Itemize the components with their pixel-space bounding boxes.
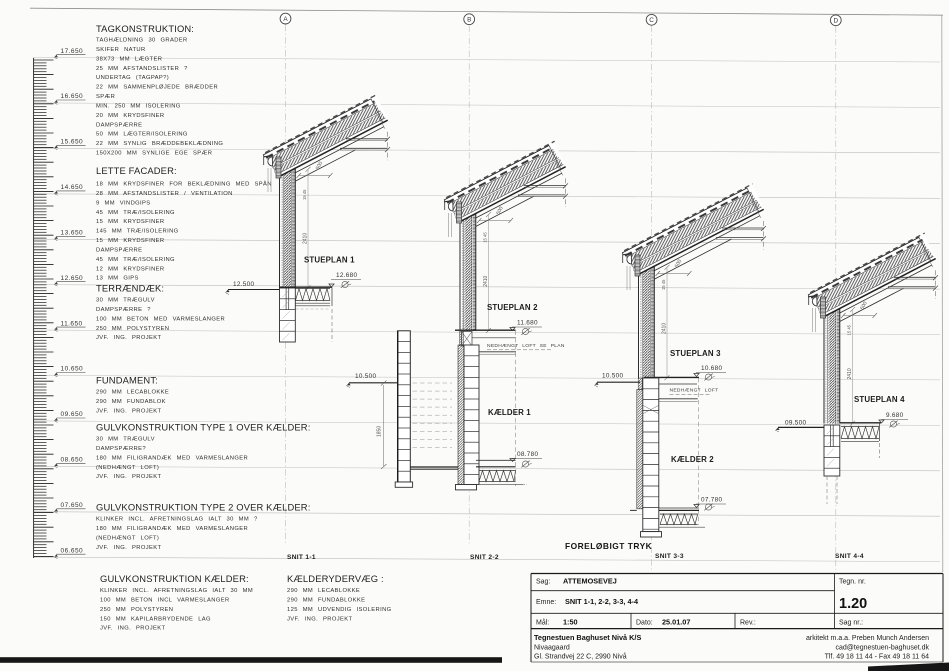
svg-text:15 45: 15 45 <box>483 232 488 243</box>
svg-text:06.650: 06.650 <box>61 547 84 554</box>
svg-text:290 MM FUNDABLOK: 290 MM FUNDABLOK <box>96 399 166 405</box>
svg-text:TERRÆNDÆK:: TERRÆNDÆK: <box>96 283 164 294</box>
svg-text:SNIT 2-2: SNIT 2-2 <box>470 554 499 561</box>
svg-text:Nivaagaard: Nivaagaard <box>534 645 570 652</box>
svg-text:12.650: 12.650 <box>61 275 84 282</box>
svg-text:9.680: 9.680 <box>886 412 904 419</box>
svg-text:10.500: 10.500 <box>602 373 623 380</box>
svg-text:STUEPLAN 1: STUEPLAN 1 <box>304 256 355 265</box>
svg-text:13 MM GIPS: 13 MM GIPS <box>96 276 139 282</box>
svg-text:Tegn. nr.: Tegn. nr. <box>839 579 866 586</box>
svg-text:12.500: 12.500 <box>233 281 254 288</box>
svg-text:D: D <box>833 18 838 25</box>
svg-text:STUEPLAN 4: STUEPLAN 4 <box>854 395 905 404</box>
svg-text:Emne:: Emne: <box>536 599 556 606</box>
svg-text:25.01.07: 25.01.07 <box>662 618 690 627</box>
svg-text:30 MM TRÆGULV: 30 MM TRÆGULV <box>96 298 155 304</box>
svg-text:11.680: 11.680 <box>517 320 538 327</box>
svg-text:150 MM KAPILARBRYDENDE LAG: 150 MM KAPILARBRYDENDE LAG <box>100 616 211 622</box>
svg-text:50 MM LÆGTER/ISOLERING: 50 MM LÆGTER/ISOLERING <box>96 132 188 138</box>
svg-text:Dato:: Dato: <box>636 620 653 627</box>
svg-text:28 MM AFSTANDSLISTER / VENTILA: 28 MM AFSTANDSLISTER / VENTILATION <box>96 191 233 197</box>
svg-text:1.20: 1.20 <box>839 596 867 612</box>
svg-text:15 MM KRYDSFINER: 15 MM KRYDSFINER <box>96 219 164 225</box>
svg-text:LETTE FACADER:: LETTE FACADER: <box>96 165 177 176</box>
svg-text:(NEDHÆNGT LOFT): (NEDHÆNGT LOFT) <box>96 535 159 541</box>
svg-text:45 MM TRÆ/ISOLERING: 45 MM TRÆ/ISOLERING <box>96 210 175 216</box>
svg-text:15 MM KRYDSFINER: 15 MM KRYDSFINER <box>96 238 164 244</box>
svg-text:22 MM SYNLIG BRÆDDEBEKLÆDNING: 22 MM SYNLIG BRÆDDEBEKLÆDNING <box>96 141 223 147</box>
svg-text:cad@tegnestuen-baghuset.dk: cad@tegnestuen-baghuset.dk <box>835 645 929 652</box>
svg-text:ATTEMOSEVEJ: ATTEMOSEVEJ <box>563 577 617 586</box>
svg-text:Tlf. 49 18 11 44 - Fax 49 18 1: Tlf. 49 18 11 44 - Fax 49 18 11 64 <box>825 654 930 661</box>
svg-text:12 MM KRYDSFINER: 12 MM KRYDSFINER <box>96 266 164 272</box>
svg-text:1850: 1850 <box>377 426 383 437</box>
svg-text:2410: 2410 <box>847 368 853 379</box>
svg-text:SKIFER NATUR: SKIFER NATUR <box>96 47 146 53</box>
svg-text:NEDHÆNGT LOFT SE PLAN: NEDHÆNGT LOFT SE PLAN <box>487 343 565 349</box>
svg-text:SNIT 3-3: SNIT 3-3 <box>655 553 684 560</box>
svg-text:Mål:: Mål: <box>536 619 549 627</box>
svg-text:2410: 2410 <box>662 323 668 334</box>
svg-text:KÆLDER 1: KÆLDER 1 <box>488 408 531 417</box>
svg-text:10.680: 10.680 <box>701 365 722 372</box>
svg-text:2410: 2410 <box>483 275 489 286</box>
svg-text:C: C <box>649 17 654 24</box>
svg-text:GULVKONSTRUKTION KÆLDER:: GULVKONSTRUKTION KÆLDER: <box>100 573 249 584</box>
svg-text:(NEDHÆNGT LOFT): (NEDHÆNGT LOFT) <box>96 465 159 471</box>
svg-text:JVF. ING. PROJEKT: JVF. ING. PROJEKT <box>96 474 161 480</box>
svg-text:15 45: 15 45 <box>847 324 852 335</box>
svg-text:08.780: 08.780 <box>517 451 538 458</box>
svg-text:10.650: 10.650 <box>61 366 84 373</box>
svg-text:GULVKONSTRUKTION TYPE 2 OVER K: GULVKONSTRUKTION TYPE 2 OVER KÆLDER: <box>96 502 310 513</box>
svg-text:JVF. ING. PROJEKT: JVF. ING. PROJEKT <box>100 626 165 632</box>
svg-text:DAMPSPÆRRE: DAMPSPÆRRE <box>96 122 142 128</box>
svg-text:KLINKER INCL. AFRETNINGSLAG IA: KLINKER INCL. AFRETNINGSLAG IALT 30 MM <box>100 588 253 594</box>
svg-text:125 MM UDVENDIG ISOLERING: 125 MM UDVENDIG ISOLERING <box>287 607 392 613</box>
svg-text:SNIT 1-1, 2-2, 3-3, 4-4: SNIT 1-1, 2-2, 3-3, 4-4 <box>565 597 639 606</box>
svg-text:290 MM LECABLOKKE: 290 MM LECABLOKKE <box>96 390 169 396</box>
svg-text:STUEPLAN 2: STUEPLAN 2 <box>487 303 538 312</box>
svg-text:MIN. 250 MM ISOLERING: MIN. 250 MM ISOLERING <box>96 103 181 109</box>
svg-text:09.500: 09.500 <box>785 420 806 427</box>
svg-text:11.650: 11.650 <box>61 320 83 327</box>
svg-text:100 MM BETON INCL VARMESLANGER: 100 MM BETON INCL VARMESLANGER <box>100 597 230 603</box>
svg-text:A: A <box>283 16 288 23</box>
svg-text:UNDERTAG (TAGPAP?): UNDERTAG (TAGPAP?) <box>96 75 169 81</box>
svg-text:180 MM FILIGRANDÆK MED VARMESL: 180 MM FILIGRANDÆK MED VARMESLANGER <box>96 455 248 461</box>
svg-text:TAGHÆLDNING 30 GRADER: TAGHÆLDNING 30 GRADER <box>96 38 188 44</box>
svg-text:NEDHÆNGT LOFT: NEDHÆNGT LOFT <box>670 388 719 394</box>
svg-text:KÆLDER 2: KÆLDER 2 <box>671 455 714 464</box>
svg-text:2410: 2410 <box>303 233 309 244</box>
svg-text:18 MM KRYDSFINER FOR BEKLÆDNIN: 18 MM KRYDSFINER FOR BEKLÆDNING MED SPÅN <box>96 181 272 188</box>
svg-text:30 MM TRÆGULV: 30 MM TRÆGULV <box>96 437 155 443</box>
svg-text:145 MM TRÆ/ISOLERING: 145 MM TRÆ/ISOLERING <box>96 229 179 235</box>
svg-text:STUEPLAN 3: STUEPLAN 3 <box>670 349 721 358</box>
svg-text:SPÆR: SPÆR <box>96 94 115 100</box>
svg-text:16.650: 16.650 <box>61 93 84 100</box>
svg-text:17.650: 17.650 <box>61 48 84 55</box>
svg-text:TAGKONSTRUKTION:: TAGKONSTRUKTION: <box>96 23 194 34</box>
svg-text:14.650: 14.650 <box>61 184 84 191</box>
svg-text:JVF. ING. PROJEKT: JVF. ING. PROJEKT <box>96 408 161 414</box>
svg-text:DAMPSPÆRRE ?: DAMPSPÆRRE ? <box>96 307 151 313</box>
svg-text:FORELØBIGT TRYK: FORELØBIGT TRYK <box>565 541 652 551</box>
svg-text:09.650: 09.650 <box>61 411 84 418</box>
svg-text:FUNDAMENT:: FUNDAMENT: <box>96 375 158 386</box>
svg-text:250 MM POLYSTYREN: 250 MM POLYSTYREN <box>100 607 173 613</box>
svg-text:B: B <box>467 17 471 24</box>
svg-text:25 MM AFSTANDSLISTER ?: 25 MM AFSTANDSLISTER ? <box>96 66 188 72</box>
svg-text:GULVKONSTRUKTION TYPE 1 OVER K: GULVKONSTRUKTION TYPE 1 OVER KÆLDER: <box>96 422 310 433</box>
svg-text:JVF. ING. PROJEKT: JVF. ING. PROJEKT <box>96 545 161 551</box>
svg-text:13.650: 13.650 <box>61 229 84 236</box>
svg-text:DAMPSPÆRRE?: DAMPSPÆRRE? <box>96 446 146 452</box>
svg-text:15 45: 15 45 <box>661 279 666 290</box>
svg-text:Sag nr.:: Sag nr.: <box>839 620 863 627</box>
svg-text:JVF. ING. PROJEKT: JVF. ING. PROJEKT <box>96 335 161 341</box>
svg-text:180 MM FILIGRANDÆK MED VARMESL: 180 MM FILIGRANDÆK MED VARMESLANGER <box>96 526 248 532</box>
svg-text:150X200 MM SYNLIGE EGE SPÆR: 150X200 MM SYNLIGE EGE SPÆR <box>96 151 212 157</box>
svg-text:250 MM POLYSTYREN: 250 MM POLYSTYREN <box>96 326 169 332</box>
svg-text:45 MM TRÆ/ISOLERING: 45 MM TRÆ/ISOLERING <box>96 257 175 263</box>
svg-text:290 MM LECABLOKKE: 290 MM LECABLOKKE <box>287 588 360 594</box>
svg-text:07.780: 07.780 <box>701 497 722 504</box>
svg-text:arkitekt m.a.a. Preben Munch A: arkitekt m.a.a. Preben Munch Andersen <box>806 635 929 642</box>
svg-text:SNIT 1-1: SNIT 1-1 <box>287 554 316 561</box>
svg-text:DAMPSPÆRRE: DAMPSPÆRRE <box>96 247 142 253</box>
svg-text:SNIT 4-4: SNIT 4-4 <box>835 553 864 560</box>
svg-text:15 45: 15 45 <box>302 189 307 200</box>
svg-text:15.650: 15.650 <box>61 139 84 146</box>
svg-text:9 MM VINDGIPS: 9 MM VINDGIPS <box>96 200 151 206</box>
svg-text:Gl. Strandvej 22 C, 2990 Nivå: Gl. Strandvej 22 C, 2990 Nivå <box>534 653 627 661</box>
svg-text:1:50: 1:50 <box>563 618 578 627</box>
svg-text:10.500: 10.500 <box>355 373 376 380</box>
svg-text:KÆLDERYDERVÆG :: KÆLDERYDERVÆG : <box>287 573 384 584</box>
svg-text:JVF. ING. PROJEKT: JVF. ING. PROJEKT <box>287 616 352 622</box>
svg-text:100 MM BETON MED VARMESLANGER: 100 MM BETON MED VARMESLANGER <box>96 316 225 322</box>
svg-text:Rev.:: Rev.: <box>740 620 756 627</box>
svg-text:22 MM SAMMENPLØJEDE BRÆDDER: 22 MM SAMMENPLØJEDE BRÆDDER <box>96 85 218 91</box>
svg-text:Sag:: Sag: <box>536 579 550 586</box>
svg-text:20 MM KRYDSFINER: 20 MM KRYDSFINER <box>96 113 164 119</box>
svg-text:38X73 MM LÆGTER: 38X73 MM LÆGTER <box>96 56 162 62</box>
svg-text:KLINKER INCL. AFRETNINGSLAG IA: KLINKER INCL. AFRETNINGSLAG IALT 30 MM ? <box>96 517 258 523</box>
svg-text:08.650: 08.650 <box>61 457 84 464</box>
svg-text:12.680: 12.680 <box>336 272 357 279</box>
svg-text:290 MM FUNDABLOKKE: 290 MM FUNDABLOKKE <box>287 597 365 603</box>
svg-text:07.650: 07.650 <box>61 502 84 509</box>
svg-text:Tegnestuen Baghuset Nivå K/S: Tegnestuen Baghuset Nivå K/S <box>534 633 641 642</box>
